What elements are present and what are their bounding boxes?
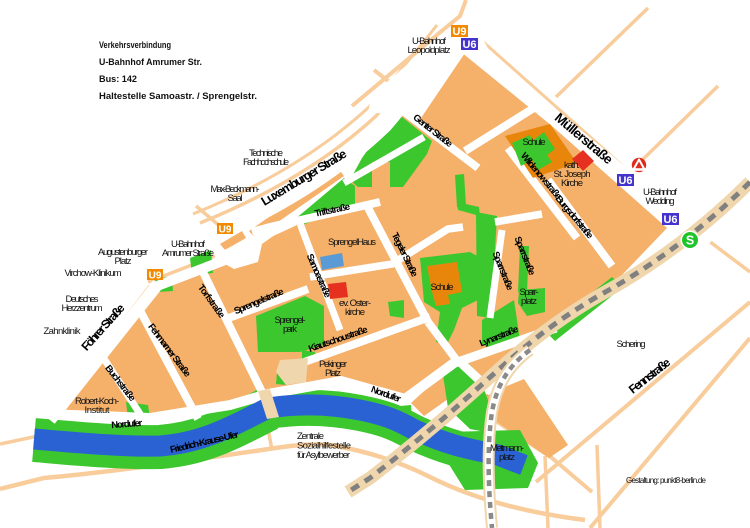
svg-text:U9: U9	[219, 225, 232, 236]
svg-text:SprengelHaus: SprengelHaus	[328, 237, 376, 248]
svg-text:Haltestelle Samoastr. / Spreng: Haltestelle Samoastr. / Sprengelstr.	[99, 91, 257, 102]
svg-text:Schering: Schering	[617, 339, 646, 350]
svg-text:Schule: Schule	[523, 137, 546, 148]
svg-text:U-BahnhofWedding: U-BahnhofWedding	[643, 187, 677, 207]
svg-text:Zahnklinik: Zahnklinik	[44, 326, 81, 337]
svg-text:U9: U9	[149, 271, 162, 282]
svg-text:Verkehrsverbindung: Verkehrsverbindung	[99, 40, 171, 51]
svg-text:DeutschesHerzzentrum: DeutschesHerzzentrum	[62, 294, 103, 314]
svg-text:Bus: 142: Bus: 142	[99, 74, 137, 85]
svg-text:U-Bahnhof Amrumer Str.: U-Bahnhof Amrumer Str.	[99, 57, 202, 68]
svg-text:U-BahnhofLeopoldplatz: U-BahnhofLeopoldplatz	[408, 36, 451, 56]
svg-text:TechnischeFachhochschule: TechnischeFachhochschule	[243, 148, 289, 168]
svg-text:U6: U6	[462, 39, 476, 51]
svg-text:Virchow-Klinikum: Virchow-Klinikum	[65, 268, 122, 279]
svg-text:Schule: Schule	[431, 282, 454, 293]
svg-text:Gestaltung: punkt8-berlin.de: Gestaltung: punkt8-berlin.de	[626, 476, 707, 485]
svg-text:Nordufer: Nordufer	[111, 418, 143, 431]
svg-text:S: S	[686, 234, 694, 248]
svg-text:U6: U6	[618, 175, 632, 187]
svg-text:U9: U9	[452, 26, 466, 38]
svg-text:U6: U6	[663, 214, 677, 226]
svg-text:Sparr-platz: Sparr-platz	[520, 287, 539, 307]
